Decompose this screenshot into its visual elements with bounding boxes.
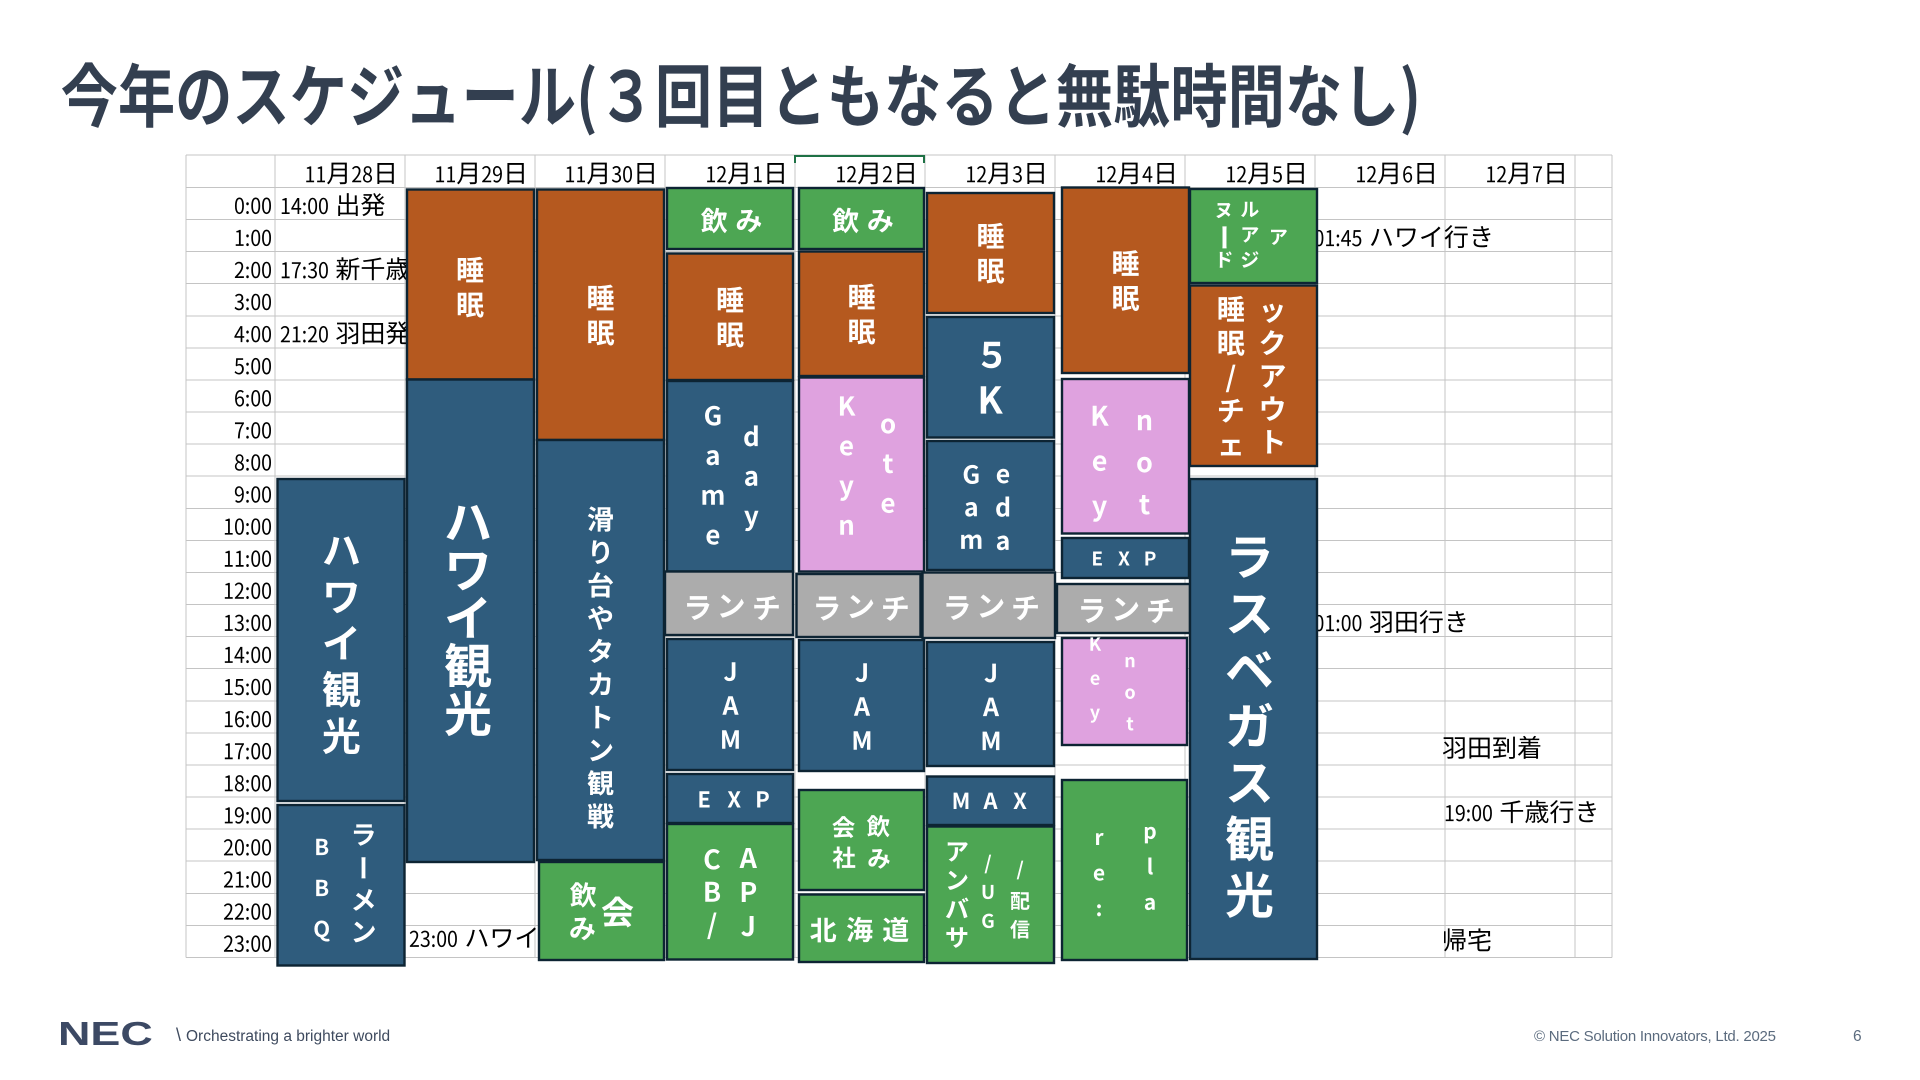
svg-text:\: \ (176, 1025, 181, 1045)
svg-text:© NEC Solution Innovators, Ltd: © NEC Solution Innovators, Ltd. 2025 (1534, 1028, 1776, 1045)
svg-text:NEC: NEC (58, 1016, 153, 1053)
svg-text:Orchestrating a brighter world: Orchestrating a brighter world (186, 1028, 390, 1045)
svg-text:6: 6 (1853, 1028, 1862, 1045)
